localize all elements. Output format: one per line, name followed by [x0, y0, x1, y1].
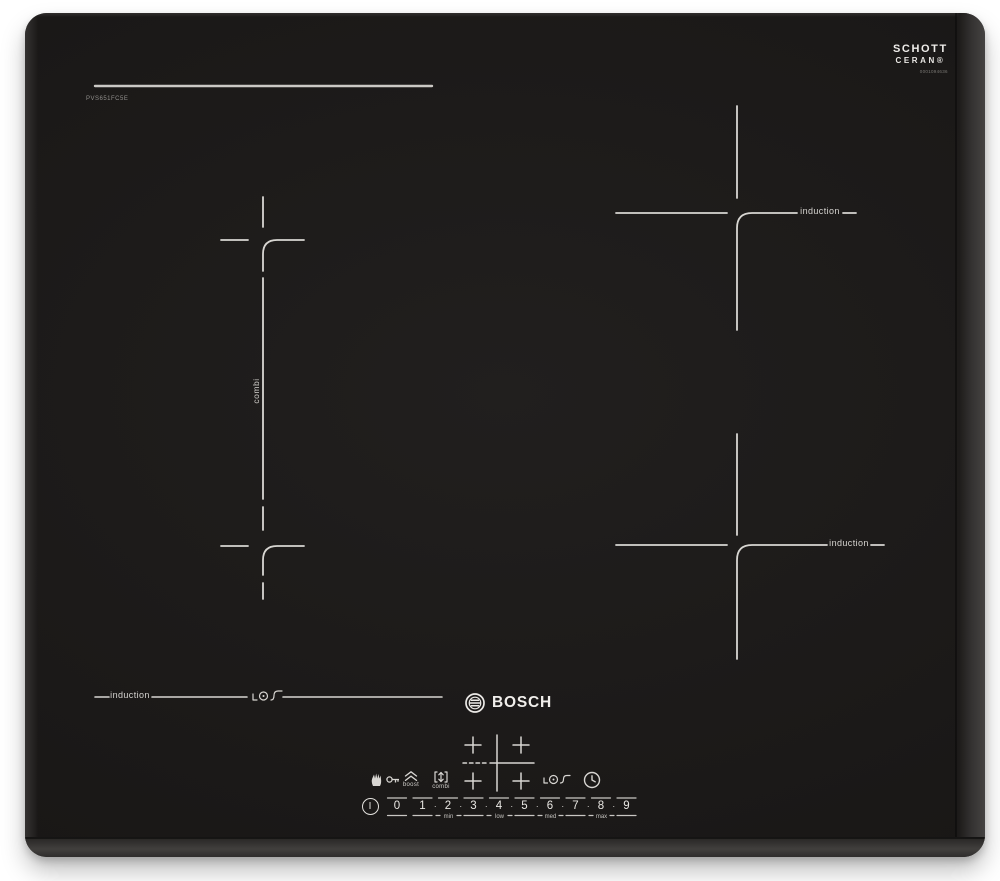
bosch-logo: BOSCH	[464, 692, 552, 714]
slider-dot: ·	[612, 801, 615, 811]
slider-level-0[interactable]: 0	[394, 800, 400, 812]
schott-ceran-logo: SCHOTT CERAN® 0001094636	[893, 44, 948, 75]
clock-icon	[581, 769, 603, 791]
slider-level-4[interactable]: 4	[496, 800, 502, 812]
label-induction-front-left: induction	[110, 690, 150, 700]
combi-button[interactable]: combi	[429, 771, 453, 790]
label-induction-back-right: induction	[800, 206, 840, 216]
slider-dot: ·	[561, 801, 564, 811]
slider-level-5[interactable]: 5	[521, 800, 527, 812]
slider-label-low: low	[495, 814, 504, 820]
hand-and-key-icon	[369, 770, 401, 787]
slider-label-max: max	[596, 814, 607, 820]
pan-sensor-icon	[541, 772, 571, 786]
slider-label-med: med	[545, 814, 557, 820]
slider-dot: ·	[485, 801, 488, 811]
double-chevron-up-icon	[404, 771, 418, 781]
product-photo-bosch-hob: { "device": { "brand_logo_text": "BOSCH"…	[0, 0, 1000, 881]
slider-dot: ·	[587, 801, 590, 811]
wipe-lock-button[interactable]	[368, 770, 402, 787]
fry-sensor-button[interactable]	[541, 772, 571, 786]
power-button[interactable]: I	[362, 798, 379, 815]
slider-label-min: min	[444, 814, 454, 820]
schott-line: SCHOTT	[893, 44, 948, 56]
slider-level-1[interactable]: 1	[419, 800, 425, 812]
boost-button-label: boost	[403, 782, 419, 788]
boost-button[interactable]: boost	[399, 771, 423, 788]
hob-glass-surface	[25, 13, 985, 857]
slider-level-9[interactable]: 9	[623, 800, 629, 812]
label-induction-front-right: induction	[829, 538, 869, 548]
slider-dot: ·	[459, 801, 462, 811]
combi-button-label: combi	[432, 784, 450, 790]
frame-left-bevel	[25, 13, 38, 857]
timer-button[interactable]	[581, 769, 603, 791]
slider-level-6[interactable]: 6	[547, 800, 553, 812]
frame-right-bevel	[955, 13, 985, 857]
power-symbol: I	[369, 801, 372, 812]
slider-level-7[interactable]: 7	[572, 800, 578, 812]
merge-arrows-icon	[434, 771, 448, 783]
ceran-line: CERAN®	[893, 57, 948, 65]
model-number: PVS651FC5E	[86, 96, 128, 102]
frame-bottom-bevel	[25, 837, 985, 857]
slider-level-2[interactable]: 2	[445, 800, 451, 812]
bosch-emblem-icon	[464, 692, 486, 714]
label-combi-zone: combi	[251, 378, 261, 403]
slider-level-3[interactable]: 3	[470, 800, 476, 812]
glass-serial-number: 0001094636	[893, 70, 948, 75]
bosch-wordmark: BOSCH	[492, 694, 552, 712]
frame-top-bevel	[25, 13, 985, 17]
slider-level-8[interactable]: 8	[598, 800, 604, 812]
slider-dot: ·	[510, 801, 513, 811]
slider-dot: ·	[434, 801, 437, 811]
slider-dot: ·	[536, 801, 539, 811]
